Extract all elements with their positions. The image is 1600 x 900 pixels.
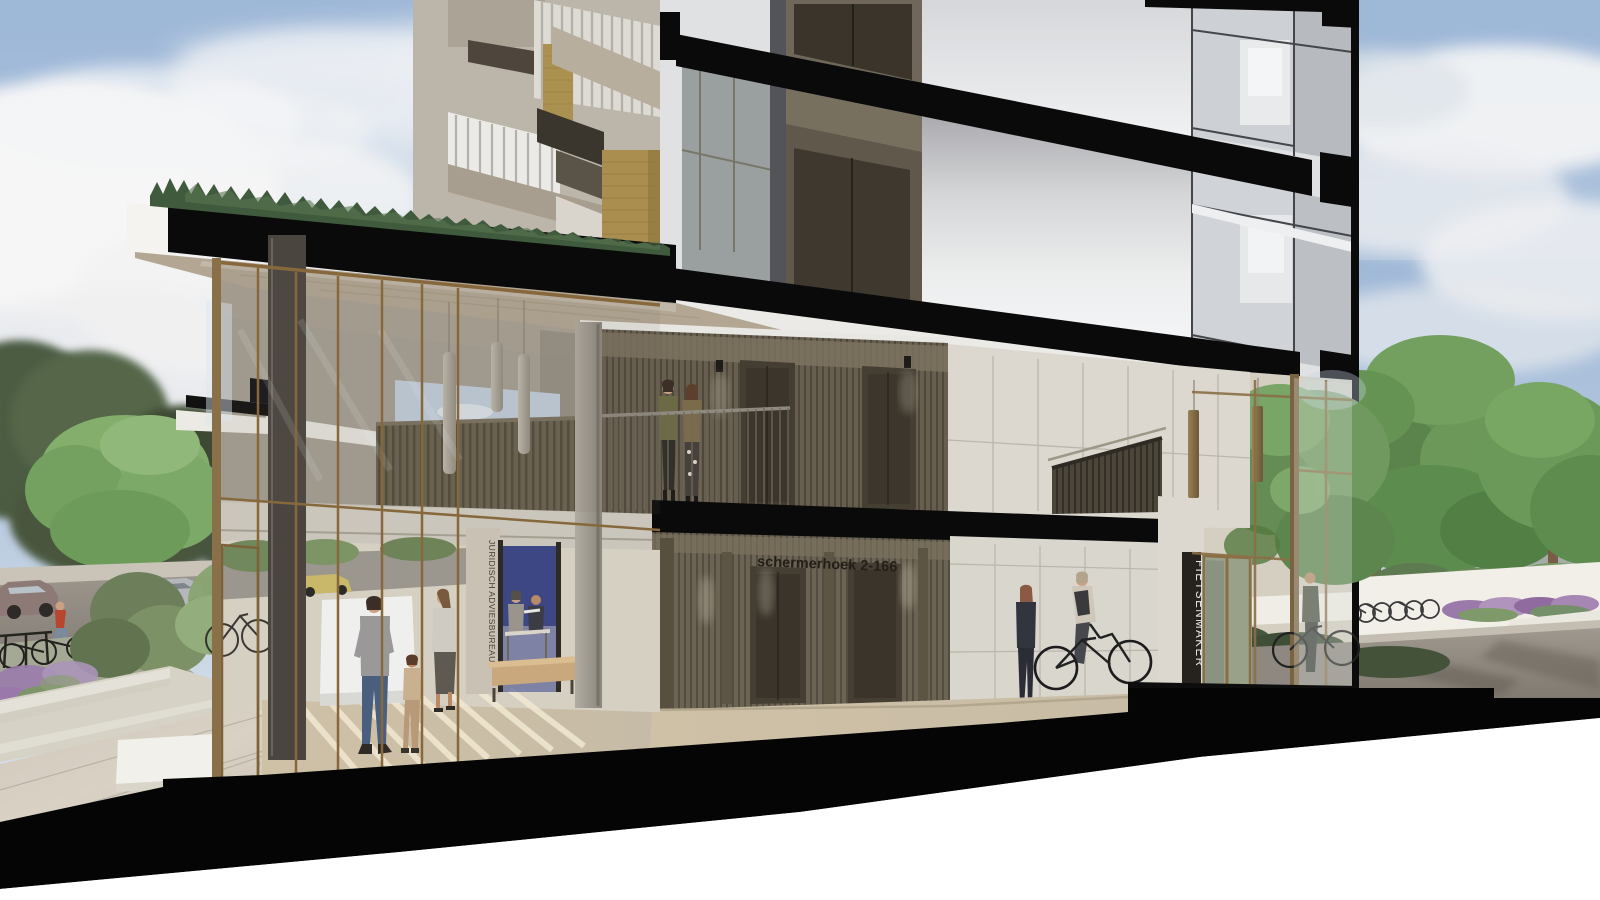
svg-text:JURIDISCH ADVIESBUREAU: JURIDISCH ADVIESBUREAU (487, 540, 497, 663)
